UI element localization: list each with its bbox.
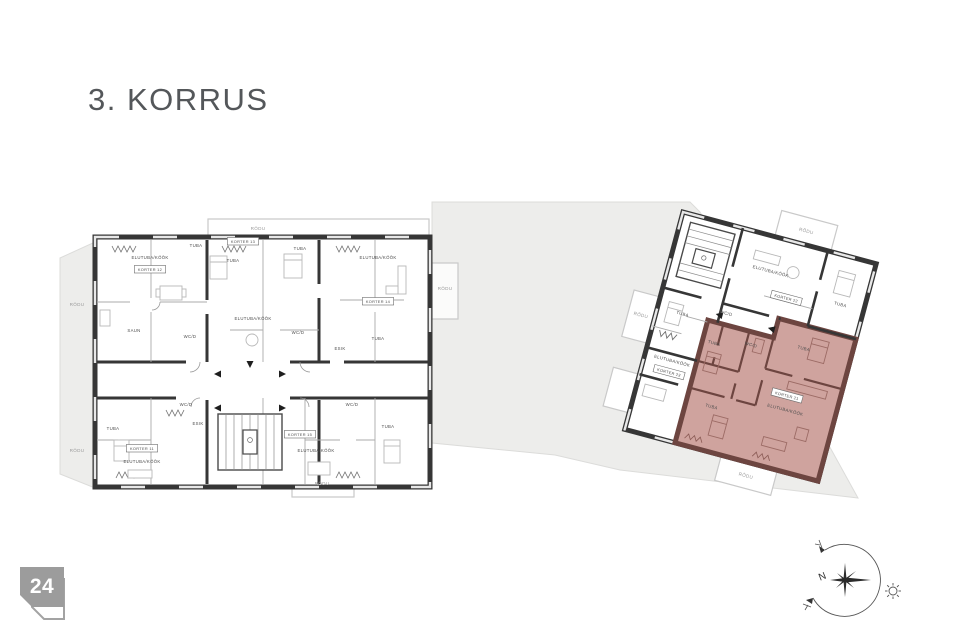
compass: N (803, 540, 901, 616)
floor-plan-canvas: RÕDURÕDURÕDURÕDURÕDUELUTUBA/KÖÖKKORTER 1… (0, 0, 960, 640)
page-number-badge: 24 (6, 554, 84, 632)
room-label: TUBA (294, 246, 307, 251)
building-a (95, 219, 458, 497)
room-label: ESIK (193, 421, 204, 426)
compass-rose (830, 563, 871, 597)
balcony-right (432, 263, 458, 319)
room-label: ELUTUBA/KÖÖK (131, 255, 168, 260)
unit-label: KORTER 15 (288, 432, 312, 437)
room-label: TUBA (107, 426, 120, 431)
compass-arrowhead-bottom (806, 598, 813, 604)
room-label: WC/D (180, 402, 193, 407)
unit-label: KORTER 11 (130, 446, 154, 451)
room-label: TUBA (372, 336, 385, 341)
brochure-page: 3. KORRUS (0, 0, 960, 640)
sun-icon (885, 583, 901, 599)
room-label: RÕDU (70, 447, 85, 453)
room-label: TUBA (190, 243, 203, 248)
room-label: WC/D (346, 402, 359, 407)
room-label: RÕDU (70, 301, 85, 307)
room-label: WC/D (292, 330, 305, 335)
room-label: ESIK (335, 346, 346, 351)
room-label: ELUTUBA/KÖÖK (297, 448, 334, 453)
room-label: ELUTUBA/KÖÖK (234, 316, 271, 321)
room-label: RÕDU (315, 480, 330, 486)
room-label: ELUTUBA/KÖÖK (359, 255, 396, 260)
unit-label: KORTER 12 (138, 267, 162, 272)
room-label: RÕDU (438, 285, 453, 291)
room-label: ELUTUBA/KÖÖK (123, 459, 160, 464)
room-label: SAUN (127, 328, 140, 333)
stair-core (218, 414, 282, 470)
unit-label: KORTER 13 (231, 239, 255, 244)
room-label: TUBA (227, 258, 240, 263)
room-label: RÕDU (251, 225, 266, 231)
room-label: WC/D (184, 334, 197, 339)
page-number: 24 (20, 567, 64, 607)
room-label: TUBA (382, 424, 395, 429)
compass-north-label: N (817, 571, 828, 584)
unit-label: KORTER 14 (366, 299, 391, 304)
